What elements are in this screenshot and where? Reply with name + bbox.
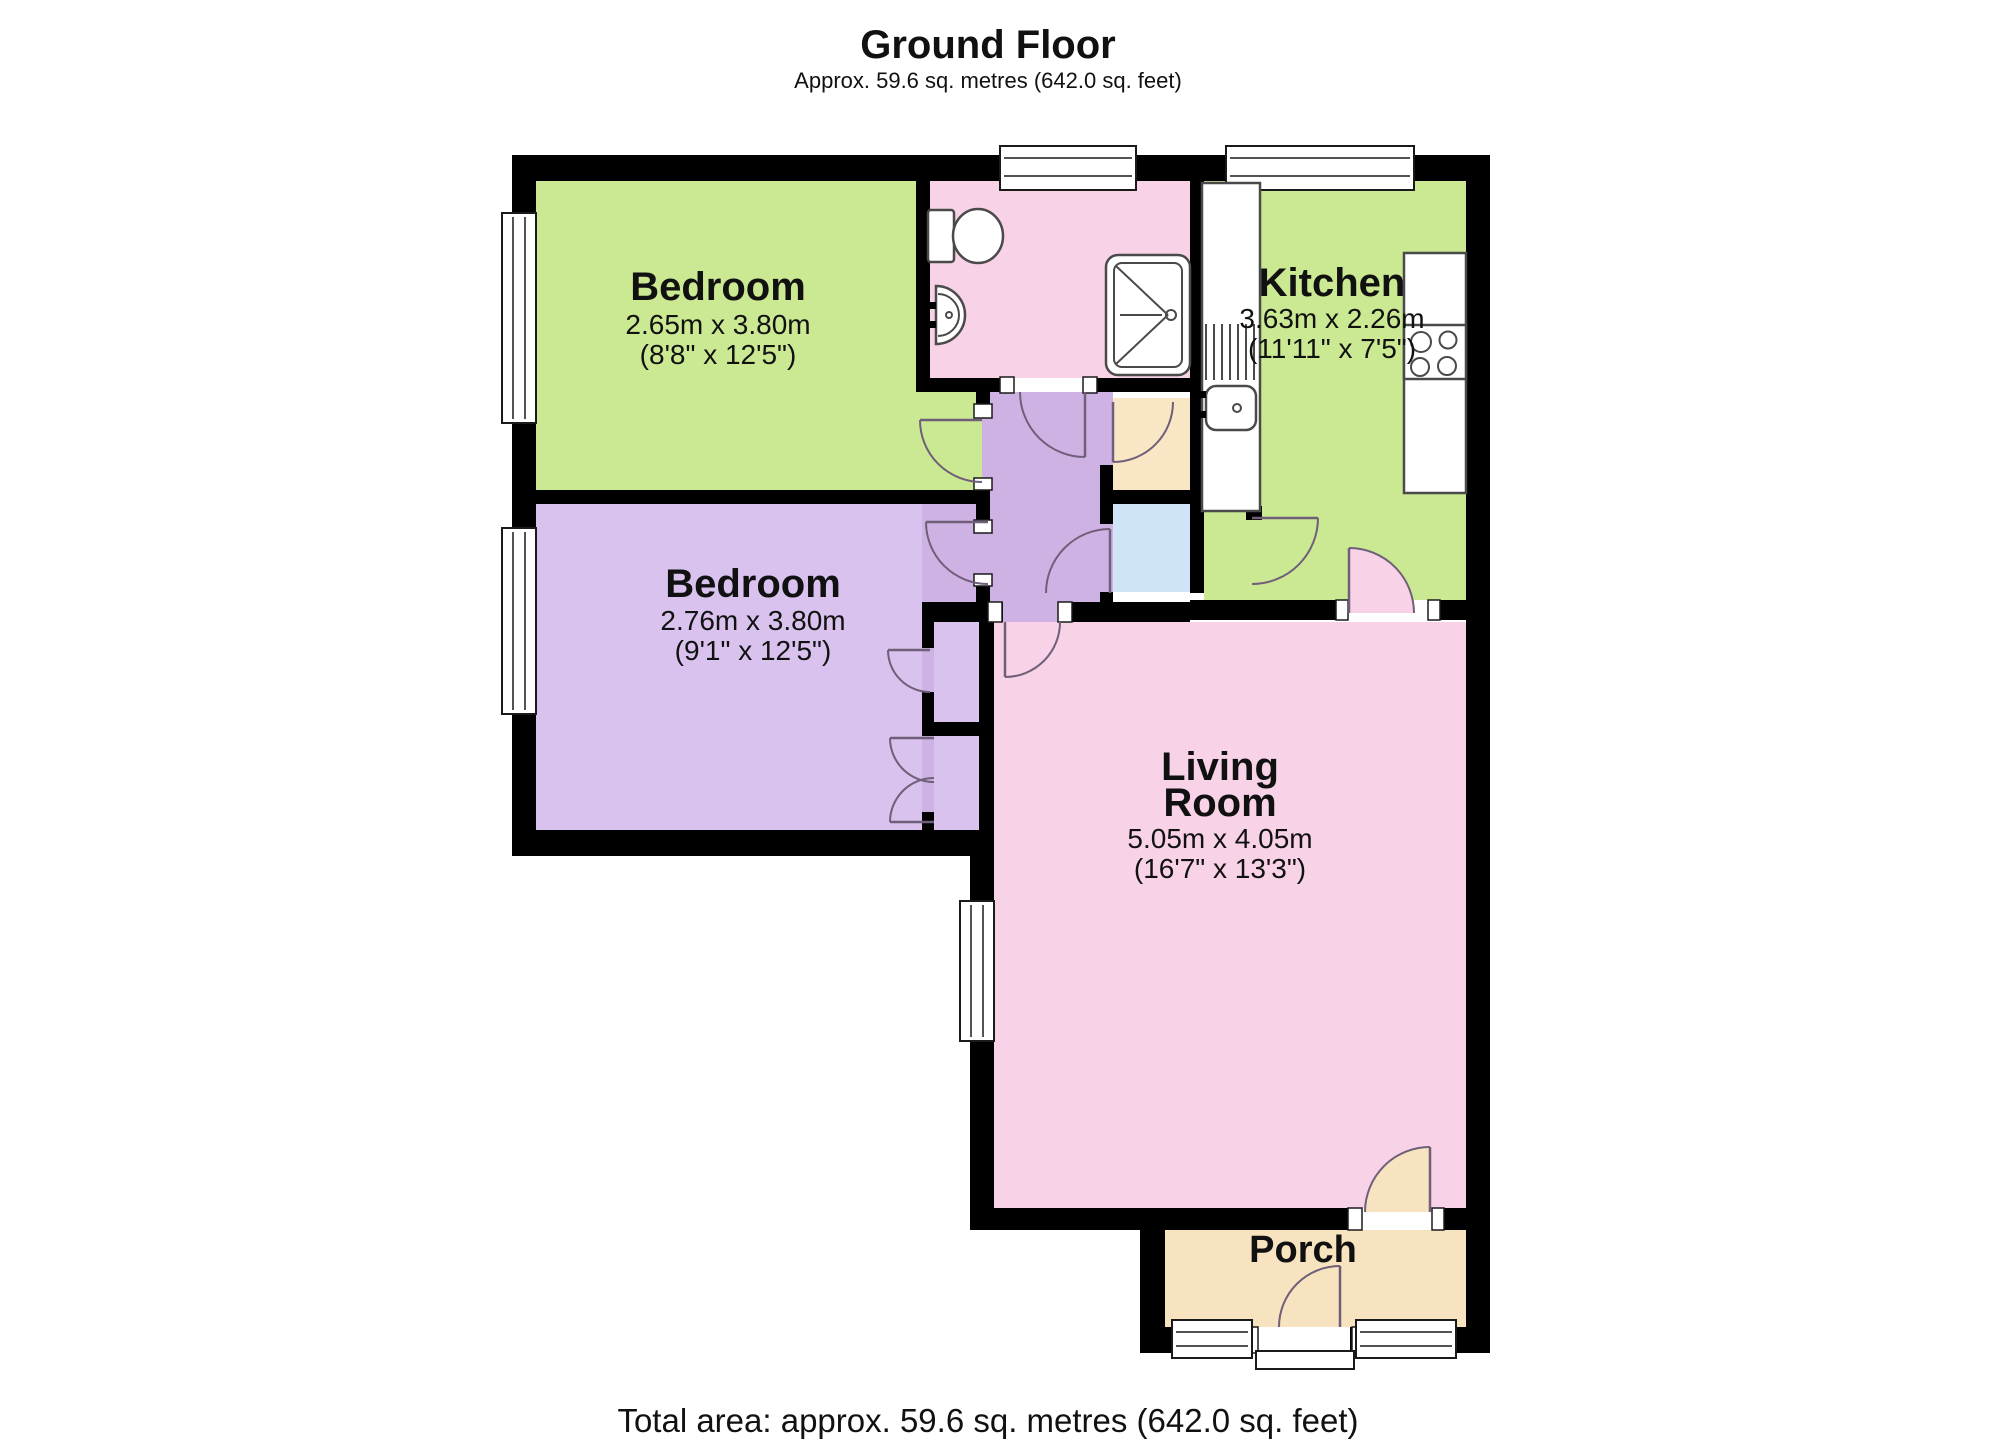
- bedroom1-name: Bedroom: [630, 265, 806, 309]
- wall-segment: [512, 830, 994, 856]
- page-title: Ground Floor: [860, 23, 1116, 67]
- kitchen-worktop-hob: [1404, 253, 1466, 493]
- wall-segment: [922, 692, 934, 724]
- floorplan-canvas: Ground Floor Approx. 59.6 sq. metres (64…: [0, 0, 2000, 1455]
- wall-segment: [1100, 504, 1113, 524]
- front-door-threshold: [1256, 1351, 1354, 1369]
- door-jamb: [1083, 377, 1097, 393]
- living-room-floor: [994, 622, 1466, 1208]
- wall-segment: [922, 722, 994, 736]
- door-jamb: [988, 602, 1002, 622]
- kitchen-dims-imperial: (11'11" x 7'5"): [1248, 333, 1416, 364]
- tap-icon: [924, 321, 936, 328]
- toilet-fixture: [928, 209, 1003, 263]
- hallway-floor-east: [1010, 392, 1113, 622]
- door-jamb: [974, 478, 992, 490]
- wall-segment: [1060, 602, 1190, 622]
- bedroom2-dims-metric: 2.76m x 3.80m: [660, 605, 845, 636]
- wall-segment: [1085, 378, 1190, 392]
- porch-window-right: [1356, 1320, 1456, 1358]
- door-jamb: [1336, 600, 1348, 620]
- door-jamb: [1058, 602, 1072, 622]
- bedroom1-window: [502, 213, 536, 423]
- wall-segment: [1190, 600, 1348, 620]
- tap-icon: [1194, 391, 1206, 398]
- wall-segment: [1100, 592, 1113, 622]
- tap-icon: [924, 302, 936, 309]
- door-jamb: [1348, 1208, 1362, 1230]
- bedroom2-label: Bedroom 2.76m x 3.80m (9'1" x 12'5"): [660, 562, 845, 666]
- bedroom1-label: Bedroom 2.65m x 3.80m (8'8" x 12'5"): [625, 265, 810, 370]
- bedroom2-floor: [536, 504, 922, 830]
- porch-window-left: [1172, 1320, 1252, 1358]
- bedroom1-dims-metric: 2.65m x 3.80m: [625, 309, 810, 340]
- store-cupboard-floor: [1113, 504, 1190, 592]
- door-jamb: [1428, 600, 1440, 620]
- living-room-window: [960, 901, 994, 1041]
- door-jamb: [1432, 1208, 1444, 1230]
- airing-cupboard-floor: [1113, 398, 1190, 490]
- living-room-dims-metric: 5.05m x 4.05m: [1127, 823, 1312, 854]
- wall-segment: [1100, 490, 1190, 504]
- bedroom2-window: [502, 528, 536, 714]
- door-jamb: [1000, 377, 1014, 393]
- wall-segment: [512, 490, 980, 504]
- page-subtitle: Approx. 59.6 sq. metres (642.0 sq. feet): [794, 68, 1182, 93]
- wall-segment: [976, 490, 990, 522]
- kitchen-name: Kitchen: [1259, 261, 1406, 305]
- porch-name: Porch: [1249, 1229, 1357, 1271]
- wall-segment: [916, 378, 1012, 392]
- total-area-text: Total area: approx. 59.6 sq. metres (642…: [617, 1402, 1358, 1439]
- floorplan-page: Ground Floor Approx. 59.6 sq. metres (64…: [0, 0, 2000, 1455]
- kitchen-sink: [1206, 386, 1256, 430]
- wall-segment: [979, 602, 994, 830]
- living-room-name-line2: Room: [1163, 781, 1276, 825]
- bathroom-window: [1000, 146, 1136, 190]
- wall-segment: [922, 620, 934, 648]
- wall-segment: [970, 1208, 1348, 1230]
- living-room-dims-imperial: (16'7" x 13'3"): [1134, 853, 1306, 884]
- tap-icon: [1194, 411, 1206, 418]
- door-jamb: [974, 404, 992, 418]
- kitchen-dims-metric: 3.63m x 2.26m: [1239, 303, 1424, 334]
- wall-segment: [1466, 155, 1490, 1353]
- bedroom1-dims-imperial: (8'8" x 12'5"): [640, 339, 797, 370]
- bedroom2-name: Bedroom: [665, 562, 841, 606]
- kitchen-label: Kitchen 3.63m x 2.26m (11'11" x 7'5"): [1239, 261, 1424, 364]
- shower-fixture: [1106, 255, 1190, 375]
- bedroom2-dims-imperial: (9'1" x 12'5"): [675, 635, 832, 666]
